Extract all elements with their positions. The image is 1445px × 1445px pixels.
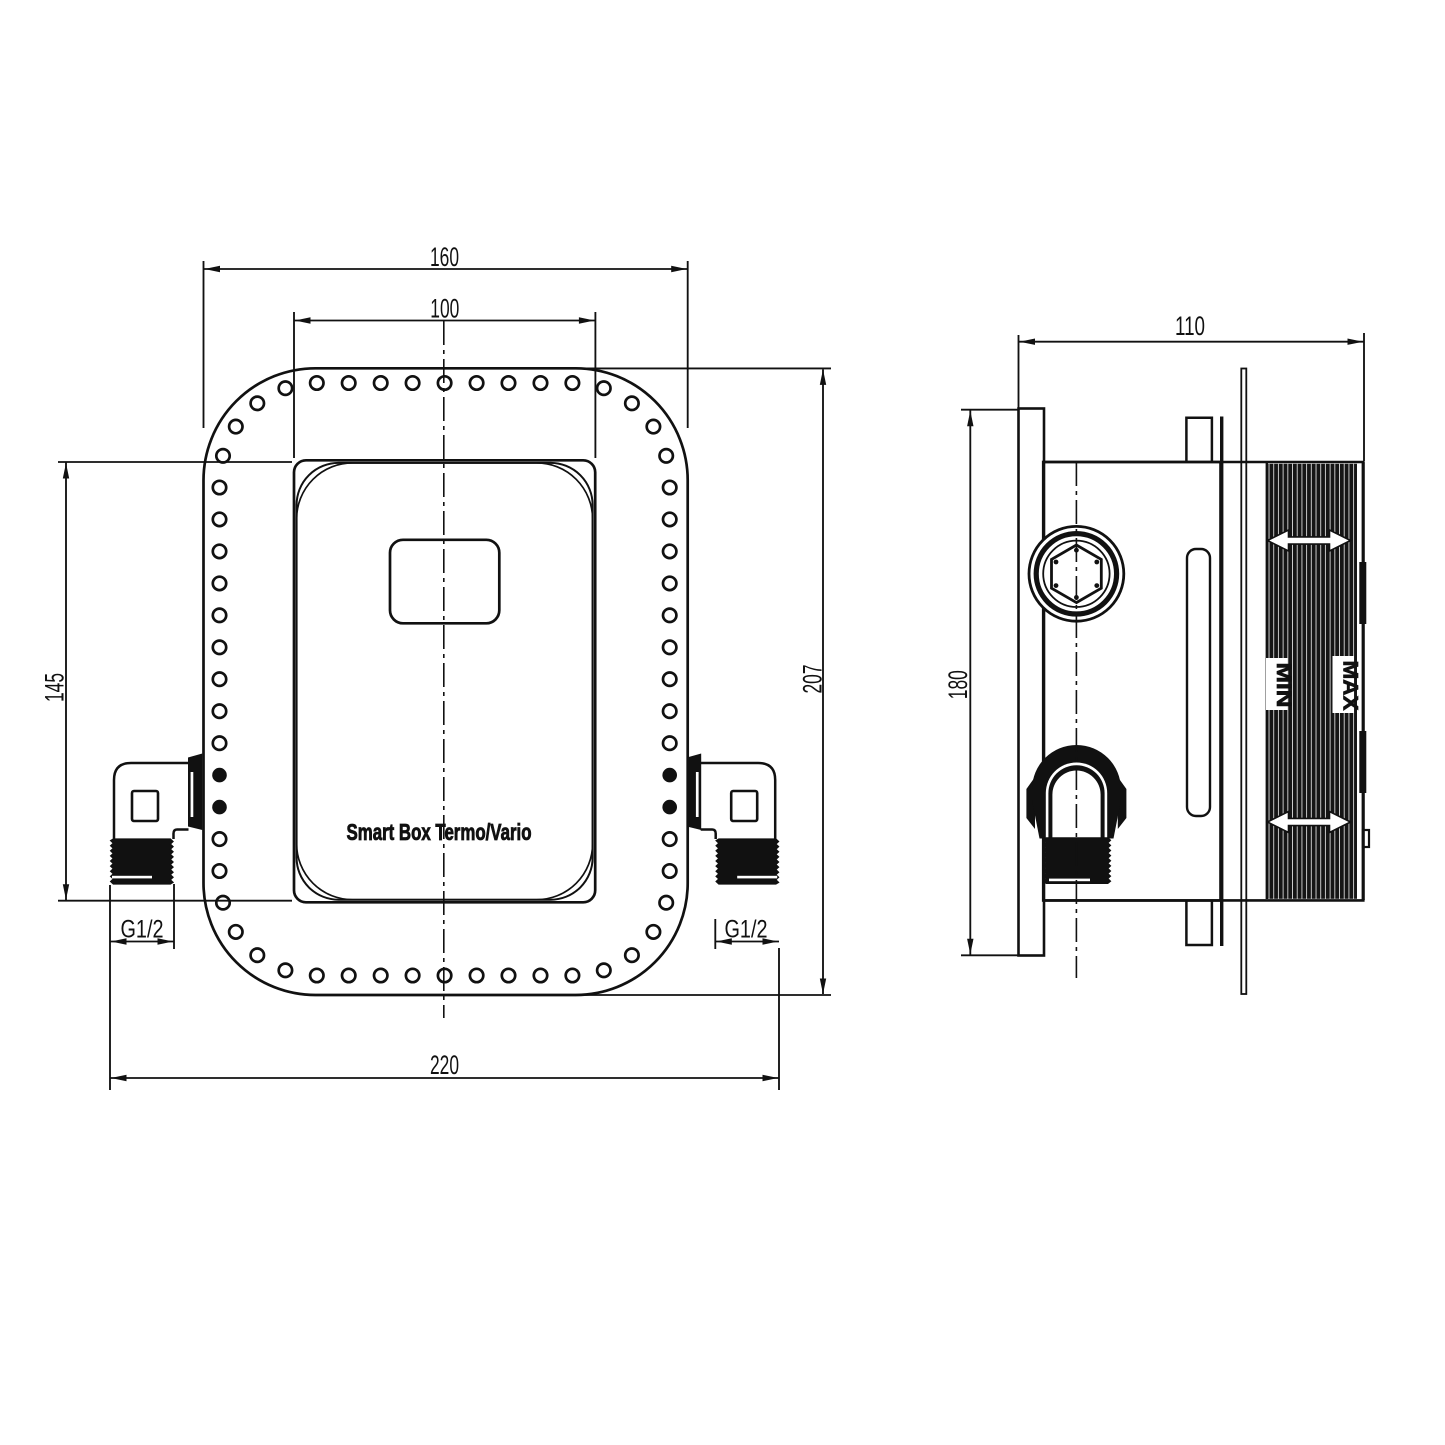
svg-text:207: 207 <box>798 665 828 694</box>
svg-text:MAX: MAX <box>1339 661 1362 711</box>
svg-text:G1/2: G1/2 <box>725 916 768 944</box>
svg-text:G1/2: G1/2 <box>121 916 164 944</box>
svg-text:MIN: MIN <box>1272 663 1295 708</box>
svg-text:180: 180 <box>943 670 973 699</box>
svg-text:160: 160 <box>430 242 459 272</box>
svg-text:110: 110 <box>1175 311 1205 341</box>
svg-text:Smart Box Termo/Vario: Smart Box Termo/Vario <box>347 819 532 845</box>
svg-text:100: 100 <box>430 294 459 324</box>
svg-text:220: 220 <box>430 1050 459 1080</box>
svg-text:145: 145 <box>40 673 70 702</box>
